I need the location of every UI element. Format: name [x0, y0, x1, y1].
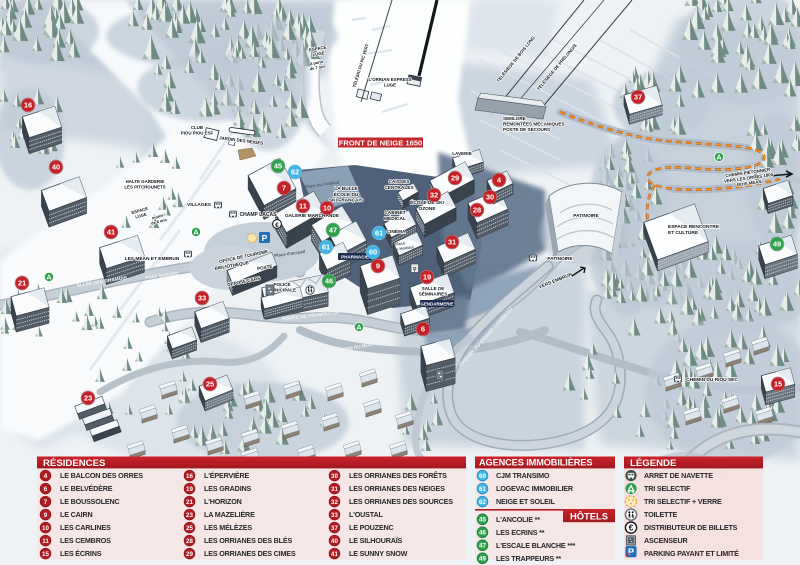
svg-text:LES ORRIANES DES FORÊTS: LES ORRIANES DES FORÊTS — [349, 471, 447, 480]
svg-text:HÔTELS: HÔTELS — [570, 511, 608, 522]
svg-text:61: 61 — [479, 486, 486, 493]
svg-text:LE BALCON DES ORRES: LE BALCON DES ORRES — [60, 471, 143, 480]
svg-text:6: 6 — [44, 486, 48, 493]
svg-text:CAISSES: CAISSES — [388, 179, 410, 185]
svg-text:L'HORIZON: L'HORIZON — [204, 497, 242, 506]
svg-text:LA BULLE: LA BULLE — [334, 186, 358, 192]
svg-text:LE CAIRN: LE CAIRN — [60, 510, 93, 519]
svg-text:SÉMINAIRES: SÉMINAIRES — [419, 290, 448, 297]
svg-text:19: 19 — [186, 486, 193, 493]
svg-text:CHAMP LACAS: CHAMP LACAS — [240, 212, 278, 218]
svg-text:10: 10 — [323, 204, 331, 213]
svg-text:47: 47 — [329, 226, 337, 235]
svg-text:25: 25 — [206, 380, 214, 389]
svg-text:10: 10 — [42, 525, 49, 532]
svg-text:POLICE: POLICE — [273, 282, 290, 287]
svg-text:9: 9 — [376, 262, 380, 271]
svg-text:41: 41 — [107, 228, 115, 237]
svg-text:LA MAZELIÈRE: LA MAZELIÈRE — [204, 510, 255, 519]
svg-text:40: 40 — [52, 163, 60, 172]
svg-text:16: 16 — [186, 473, 193, 480]
svg-text:ET CULTURE: ET CULTURE — [668, 230, 699, 236]
svg-text:LE SILHOURAÏS: LE SILHOURAÏS — [349, 536, 403, 545]
svg-text:P: P — [262, 233, 268, 243]
svg-text:LES ÉCRINS: LES ÉCRINS — [60, 549, 102, 558]
svg-text:62: 62 — [479, 499, 486, 506]
svg-text:32: 32 — [430, 191, 438, 200]
svg-text:45: 45 — [479, 517, 486, 524]
svg-text:LE BOUSSOLENC: LE BOUSSOLENC — [60, 497, 120, 506]
svg-text:25: 25 — [186, 525, 193, 532]
svg-text:LES MÉLÈZES: LES MÉLÈZES — [204, 523, 252, 532]
svg-text:VILLAGES: VILLAGES — [187, 202, 212, 208]
svg-text:CJM TRANSIMO: CJM TRANSIMO — [496, 471, 550, 480]
svg-text:SEMLORE: SEMLORE — [503, 116, 526, 121]
svg-text:46: 46 — [325, 277, 333, 286]
svg-text:30: 30 — [331, 473, 338, 480]
svg-text:40: 40 — [331, 538, 338, 545]
svg-text:TRI SELECTIF: TRI SELECTIF — [644, 484, 691, 493]
svg-text:PATINOIRE: PATINOIRE — [573, 213, 599, 219]
svg-text:9: 9 — [44, 512, 48, 519]
svg-text:7: 7 — [282, 184, 286, 193]
svg-text:GALERIE MARCHANDE: GALERIE MARCHANDE — [285, 213, 340, 219]
svg-text:31: 31 — [448, 238, 456, 247]
svg-text:LES PITCHOUNETS: LES PITCHOUNETS — [124, 184, 165, 189]
svg-text:31: 31 — [331, 486, 338, 493]
svg-text:11: 11 — [42, 538, 49, 545]
svg-text:AGENCES IMMOBILIÈRES: AGENCES IMMOBILIÈRES — [479, 457, 592, 468]
svg-text:33: 33 — [331, 512, 338, 519]
svg-text:LAVERIE: LAVERIE — [452, 151, 472, 156]
svg-text:15: 15 — [774, 380, 782, 389]
svg-text:LES CEMBROS: LES CEMBROS — [60, 536, 111, 545]
svg-text:POSTE DE SECOURS: POSTE DE SECOURS — [503, 127, 550, 132]
svg-text:28: 28 — [186, 538, 193, 545]
svg-text:SKI FRANÇAIS: SKI FRANÇAIS — [329, 198, 364, 204]
svg-text:61: 61 — [375, 229, 383, 238]
svg-text:47: 47 — [479, 543, 486, 550]
svg-text:LUGE: LUGE — [384, 82, 396, 87]
svg-text:L'ESCALE BLANCHE ***: L'ESCALE BLANCHE *** — [496, 541, 576, 550]
svg-text:LES GRADINS: LES GRADINS — [204, 484, 252, 493]
svg-text:CABINET: CABINET — [384, 210, 405, 216]
svg-text:PARKING PAYANT ET LIMITÉ: PARKING PAYANT ET LIMITÉ — [644, 549, 739, 558]
svg-text:PATINOIRE: PATINOIRE — [547, 256, 573, 262]
svg-text:46: 46 — [479, 530, 486, 537]
svg-text:LOGEVAC IMMOBILIER: LOGEVAC IMMOBILIER — [496, 484, 574, 493]
svg-text:L'ORRIAN EXPRESS: L'ORRIAN EXPRESS — [368, 77, 411, 82]
svg-text:GENDARMERIE: GENDARMERIE — [421, 301, 454, 306]
svg-text:CHEMIN DU RIOU SEC: CHEMIN DU RIOU SEC — [686, 377, 738, 383]
svg-text:6: 6 — [421, 325, 425, 334]
svg-text:REMONTÉES MÉCANIQUES: REMONTÉES MÉCANIQUES — [503, 120, 565, 127]
svg-text:28: 28 — [473, 206, 481, 215]
svg-text:LES ORRIANES DES CIMES: LES ORRIANES DES CIMES — [204, 549, 296, 558]
svg-text:23: 23 — [84, 394, 92, 403]
svg-text:16: 16 — [24, 101, 32, 110]
svg-text:FRONT DE NEIGE 1650: FRONT DE NEIGE 1650 — [339, 139, 423, 148]
svg-text:33: 33 — [198, 294, 206, 303]
svg-text:21: 21 — [186, 499, 193, 506]
svg-text:LÉGENDE: LÉGENDE — [630, 457, 677, 469]
svg-text:LES ORRIANES DES NEIGES: LES ORRIANES DES NEIGES — [349, 484, 445, 493]
svg-text:PIOU PIOU ESF: PIOU PIOU ESF — [181, 130, 214, 135]
svg-text:37: 37 — [634, 93, 642, 102]
svg-text:ASCENSEUR: ASCENSEUR — [644, 536, 688, 545]
svg-text:NEIGE ET SOLEIL: NEIGE ET SOLEIL — [496, 497, 556, 506]
svg-text:LE BELVÉDÈRE: LE BELVÉDÈRE — [60, 484, 113, 493]
svg-text:41: 41 — [331, 551, 338, 558]
svg-text:HALTE GARDERIE: HALTE GARDERIE — [126, 179, 165, 184]
svg-text:LES ORRIANES DES BLÉS: LES ORRIANES DES BLÉS — [204, 536, 292, 545]
svg-text:LE POUZENC: LE POUZENC — [349, 523, 394, 532]
svg-text:37: 37 — [331, 525, 338, 532]
svg-text:61: 61 — [322, 243, 330, 252]
svg-text:LE SUNNY SNOW: LE SUNNY SNOW — [349, 549, 408, 558]
svg-text:15: 15 — [42, 551, 49, 558]
svg-text:60: 60 — [479, 473, 486, 480]
svg-text:⚲: ⚲ — [413, 266, 417, 273]
svg-text:30: 30 — [486, 193, 494, 202]
svg-text:19: 19 — [423, 273, 431, 282]
svg-text:4: 4 — [44, 473, 48, 480]
svg-text:62: 62 — [291, 168, 299, 177]
svg-text:49: 49 — [479, 556, 486, 563]
svg-text:11: 11 — [299, 202, 307, 211]
svg-text:DISTRIBUTEUR DE BILLETS: DISTRIBUTEUR DE BILLETS — [644, 523, 738, 532]
svg-text:P: P — [628, 546, 634, 557]
svg-text:TOILETTE: TOILETTE — [644, 510, 678, 519]
svg-text:LES TRAPPEURS **: LES TRAPPEURS ** — [496, 554, 561, 563]
svg-text:29: 29 — [186, 551, 193, 558]
svg-text:€: € — [629, 523, 634, 533]
svg-text:CLUB: CLUB — [191, 125, 203, 130]
svg-text:LES CARLINES: LES CARLINES — [60, 523, 111, 532]
svg-text:LES ECRINS **: LES ECRINS ** — [496, 528, 545, 537]
svg-text:TRI SELECTIF + VERRE: TRI SELECTIF + VERRE — [644, 497, 722, 506]
svg-text:32: 32 — [331, 499, 338, 506]
svg-text:LES ORRIANES DES SOURCES: LES ORRIANES DES SOURCES — [349, 497, 453, 506]
svg-text:PHARMACIE: PHARMACIE — [341, 254, 369, 259]
svg-text:29: 29 — [451, 174, 459, 183]
svg-text:60: 60 — [369, 248, 377, 257]
svg-text:RÉSIDENCES: RÉSIDENCES — [43, 457, 106, 469]
svg-text:L'ÉPERVIÈRE: L'ÉPERVIÈRE — [204, 471, 250, 480]
svg-text:ESPACE RENCONTRE: ESPACE RENCONTRE — [668, 224, 720, 230]
svg-text:OZONE: OZONE — [418, 206, 436, 212]
svg-text:7: 7 — [44, 499, 48, 506]
svg-text:€: € — [275, 222, 279, 229]
svg-text:21: 21 — [18, 279, 26, 288]
svg-text:L'ANCOLIE **: L'ANCOLIE ** — [496, 515, 540, 524]
svg-text:23: 23 — [186, 512, 193, 519]
svg-text:SALLE DE: SALLE DE — [422, 286, 445, 291]
svg-text:CENTRALES: CENTRALES — [384, 185, 414, 191]
svg-text:45: 45 — [274, 162, 282, 171]
svg-text:49: 49 — [773, 240, 781, 249]
svg-text:ARRET DE NAVETTE: ARRET DE NAVETTE — [644, 471, 713, 480]
svg-text:L'OUSTAL: L'OUSTAL — [349, 510, 383, 519]
